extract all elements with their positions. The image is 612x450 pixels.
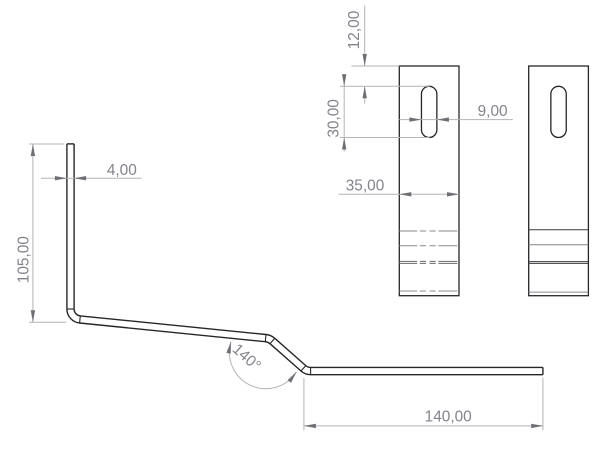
svg-text:12,00: 12,00 (346, 11, 363, 50)
svg-text:35,00: 35,00 (346, 178, 385, 195)
svg-text:9,00: 9,00 (478, 103, 508, 120)
svg-text:105,00: 105,00 (15, 236, 32, 283)
svg-text:30,00: 30,00 (326, 99, 343, 138)
svg-text:140,00: 140,00 (425, 409, 472, 426)
svg-text:4,00: 4,00 (107, 162, 137, 179)
